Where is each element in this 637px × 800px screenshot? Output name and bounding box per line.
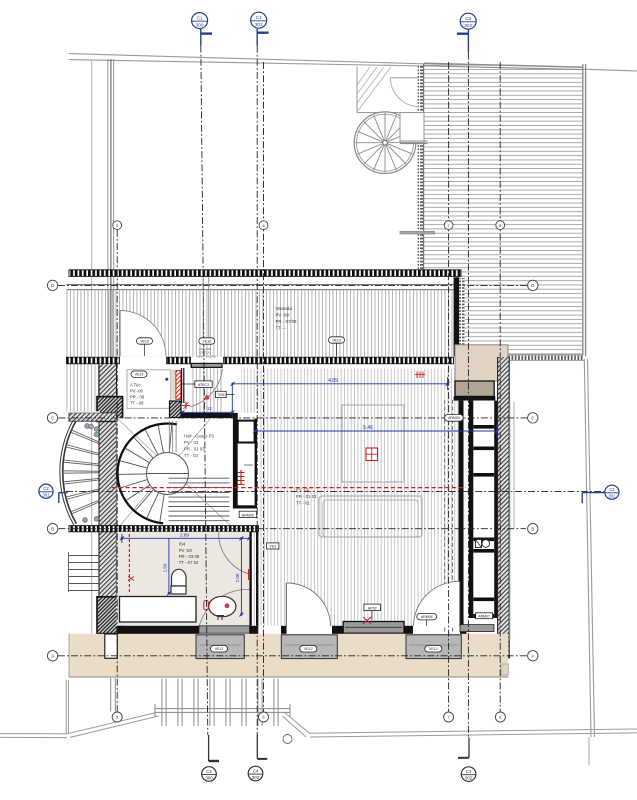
svg-text:2.00: 2.00 xyxy=(235,573,240,582)
svg-text:VE16: VE16 xyxy=(203,339,212,343)
svg-text:VE3: VE3 xyxy=(269,545,276,549)
svg-text:ARM06: ARM06 xyxy=(421,615,433,619)
svg-text:TT - 01: TT - 01 xyxy=(296,501,310,506)
svg-text:C2: C2 xyxy=(609,487,615,492)
svg-text:PR - 01 03: PR - 01 03 xyxy=(184,447,205,452)
svg-text:C4: C4 xyxy=(256,15,262,20)
svg-text:D: D xyxy=(531,283,534,288)
svg-text:VENTILAÇÃO: VENTILAÇÃO xyxy=(197,353,217,358)
svg-text:TT - 07 04: TT - 07 04 xyxy=(179,560,199,565)
svg-text:302: 302 xyxy=(255,22,263,27)
svg-text:C1: C1 xyxy=(206,769,212,774)
svg-text:8: 8 xyxy=(499,224,501,228)
svg-text:C3: C3 xyxy=(466,769,472,774)
svg-text:A: A xyxy=(51,654,54,659)
svg-text:C1: C1 xyxy=(197,15,203,20)
svg-text:ARM04: ARM04 xyxy=(448,416,460,420)
svg-text:300: 300 xyxy=(196,22,204,27)
svg-text:PV -03: PV -03 xyxy=(179,548,193,553)
svg-text:VE12: VE12 xyxy=(304,647,313,651)
svg-text:PR - 08: PR - 08 xyxy=(130,395,145,400)
svg-text:4.89: 4.89 xyxy=(328,378,338,384)
svg-text:C4: C4 xyxy=(253,768,259,773)
svg-text:1.50: 1.50 xyxy=(163,563,168,572)
svg-text:IS4: IS4 xyxy=(179,542,186,547)
svg-text:PV -08: PV -08 xyxy=(130,389,143,394)
svg-text:301: 301 xyxy=(608,493,616,498)
svg-text:VE12: VE12 xyxy=(215,647,224,651)
svg-text:A: A xyxy=(531,654,534,659)
svg-text:PR - 07/09: PR - 07/09 xyxy=(276,319,298,324)
svg-text:7V08: 7V08 xyxy=(217,393,225,397)
svg-text:C: C xyxy=(531,416,534,421)
svg-text:TT - -: TT - - xyxy=(276,326,287,331)
svg-text:VE12: VE12 xyxy=(429,647,438,651)
svg-text:B: B xyxy=(531,526,534,531)
svg-text:Varanda: Varanda xyxy=(276,306,293,311)
svg-text:PR - 01 03: PR - 01 03 xyxy=(296,494,317,499)
svg-text:5: 5 xyxy=(116,224,118,228)
svg-text:300: 300 xyxy=(205,775,213,780)
svg-text:1.12: 1.12 xyxy=(203,406,212,411)
svg-text:PR - 03 05: PR - 03 05 xyxy=(179,554,200,559)
svg-text:AP02: AP02 xyxy=(368,606,377,610)
svg-text:301: 301 xyxy=(43,492,51,497)
svg-text:C3: C3 xyxy=(465,16,471,21)
svg-text:6: 6 xyxy=(262,224,264,228)
svg-text:ARM07: ARM07 xyxy=(478,615,490,619)
svg-text:Hall - Casas P3: Hall - Casas P3 xyxy=(184,434,214,439)
svg-text:5.46: 5.46 xyxy=(363,425,373,431)
svg-text:7: 7 xyxy=(448,224,450,228)
svg-text:PV - 03: PV - 03 xyxy=(184,440,199,445)
svg-text:A Téc.: A Téc. xyxy=(130,383,142,388)
svg-text:302: 302 xyxy=(252,775,260,780)
svg-text:302: 302 xyxy=(465,775,473,780)
svg-text:C2: C2 xyxy=(43,486,49,491)
svg-text:TT - 03: TT - 03 xyxy=(184,453,198,458)
svg-text:ARM05: ARM05 xyxy=(242,513,254,517)
svg-text:2.89: 2.89 xyxy=(180,532,189,537)
svg-text:TT - 08: TT - 08 xyxy=(130,401,144,406)
svg-text:VE15: VE15 xyxy=(140,339,149,343)
svg-text:C: C xyxy=(51,416,54,421)
svg-text:302: 302 xyxy=(464,23,472,28)
svg-text:PV -08: PV -08 xyxy=(276,313,290,318)
svg-text:VE19: VE19 xyxy=(135,373,144,377)
svg-text:PIANO: PIANO xyxy=(244,463,254,467)
svg-text:ATEC3: ATEC3 xyxy=(198,383,209,387)
svg-text:VE13: VE13 xyxy=(332,338,341,342)
svg-text:B: B xyxy=(51,526,54,531)
svg-text:D: D xyxy=(51,283,54,288)
